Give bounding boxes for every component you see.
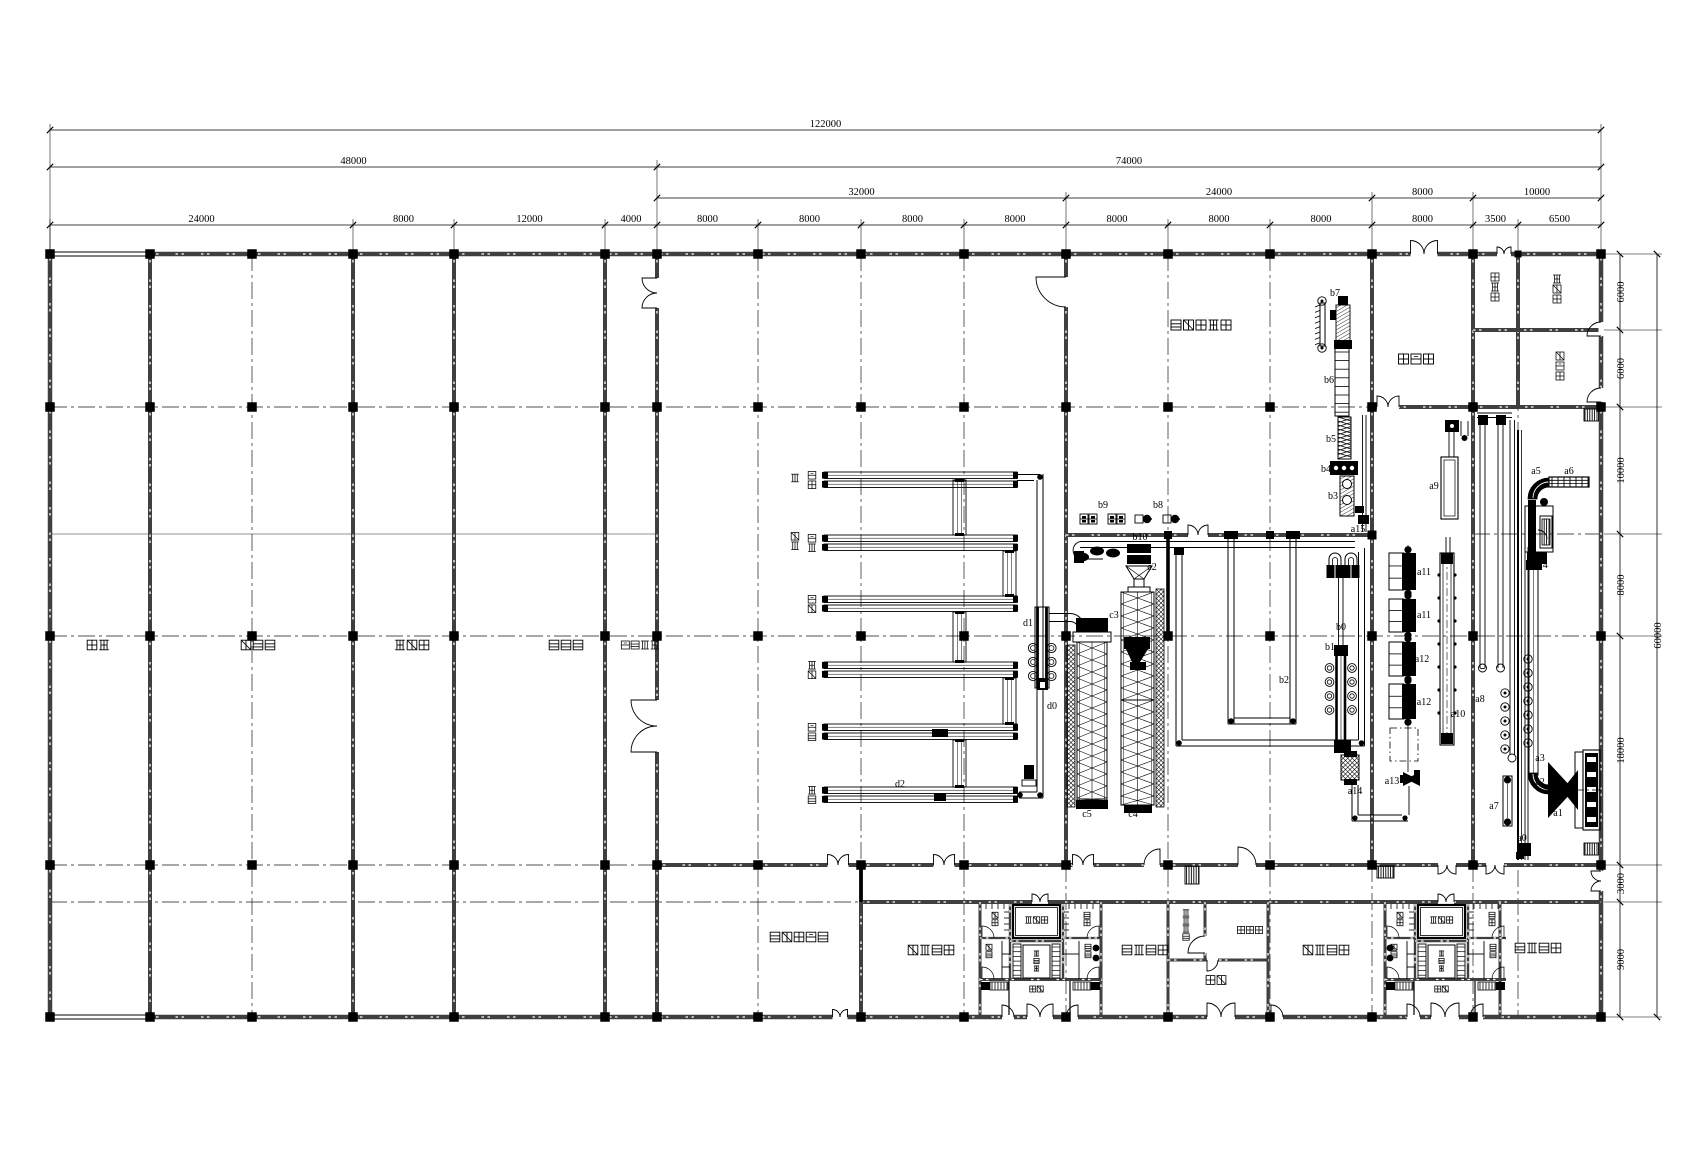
svg-text:a2: a2: [1535, 777, 1544, 788]
svg-text:8000: 8000: [393, 214, 414, 225]
svg-text:b5: b5: [1326, 434, 1336, 445]
svg-text:c4: c4: [1128, 809, 1137, 820]
svg-text:a12: a12: [1415, 654, 1429, 665]
svg-text:8000: 8000: [1412, 187, 1433, 198]
svg-text:a0: a0: [1517, 833, 1526, 844]
svg-text:10000: 10000: [1616, 457, 1627, 483]
svg-text:24000: 24000: [1206, 187, 1232, 198]
svg-text:a11: a11: [1417, 610, 1431, 621]
svg-text:8000: 8000: [1311, 214, 1332, 225]
svg-text:b10: b10: [1133, 532, 1148, 543]
svg-text:a10: a10: [1451, 709, 1465, 720]
svg-text:8000: 8000: [1107, 214, 1128, 225]
svg-text:b7: b7: [1330, 288, 1340, 299]
svg-text:8000: 8000: [1209, 214, 1230, 225]
svg-text:8000: 8000: [902, 214, 923, 225]
svg-text:4000: 4000: [621, 214, 642, 225]
svg-text:b0: b0: [1336, 622, 1346, 633]
svg-text:b3: b3: [1328, 491, 1338, 502]
svg-text:8000: 8000: [1005, 214, 1026, 225]
svg-text:a4: a4: [1538, 560, 1547, 571]
svg-text:8000: 8000: [1616, 575, 1627, 596]
svg-text:d1: d1: [1023, 618, 1033, 629]
svg-text:9000: 9000: [1616, 949, 1627, 970]
svg-text:a3: a3: [1535, 753, 1544, 764]
svg-text:b9: b9: [1098, 500, 1108, 511]
svg-text:122000: 122000: [810, 119, 842, 130]
svg-text:32000: 32000: [848, 187, 874, 198]
svg-text:a11: a11: [1417, 567, 1431, 578]
svg-text:a1: a1: [1553, 808, 1562, 819]
svg-text:b4: b4: [1321, 464, 1331, 475]
svg-text:a5: a5: [1531, 466, 1540, 477]
svg-text:8000: 8000: [697, 214, 718, 225]
svg-text:d2: d2: [895, 779, 905, 790]
svg-text:18000: 18000: [1616, 737, 1627, 763]
svg-text:b8: b8: [1153, 500, 1163, 511]
svg-text:6000: 6000: [1616, 358, 1627, 379]
svg-text:74000: 74000: [1116, 156, 1142, 167]
svg-text:10000: 10000: [1524, 187, 1550, 198]
svg-text:3000: 3000: [1616, 873, 1627, 894]
svg-text:a9: a9: [1429, 481, 1438, 492]
svg-text:6000: 6000: [1616, 282, 1627, 303]
svg-text:a6: a6: [1564, 466, 1573, 477]
svg-text:b1: b1: [1325, 642, 1335, 653]
svg-text:c3: c3: [1109, 610, 1118, 621]
svg-text:b6: b6: [1324, 375, 1334, 386]
svg-text:3500: 3500: [1485, 214, 1506, 225]
svg-text:48000: 48000: [340, 156, 366, 167]
svg-text:d0: d0: [1047, 701, 1057, 712]
svg-text:b2: b2: [1279, 675, 1289, 686]
svg-text:c5: c5: [1082, 809, 1091, 820]
svg-text:60000: 60000: [1653, 622, 1664, 648]
svg-text:12000: 12000: [516, 214, 542, 225]
svg-text:24000: 24000: [188, 214, 214, 225]
svg-text:c2: c2: [1147, 562, 1156, 573]
svg-text:a14: a14: [1348, 786, 1362, 797]
svg-text:8000: 8000: [1412, 214, 1433, 225]
svg-text:8000: 8000: [799, 214, 820, 225]
svg-text:a7: a7: [1489, 801, 1498, 812]
svg-text:a15: a15: [1351, 524, 1365, 535]
svg-text:a12: a12: [1417, 697, 1431, 708]
svg-text:6500: 6500: [1549, 214, 1570, 225]
svg-text:a8: a8: [1475, 694, 1484, 705]
svg-text:a13: a13: [1385, 776, 1399, 787]
